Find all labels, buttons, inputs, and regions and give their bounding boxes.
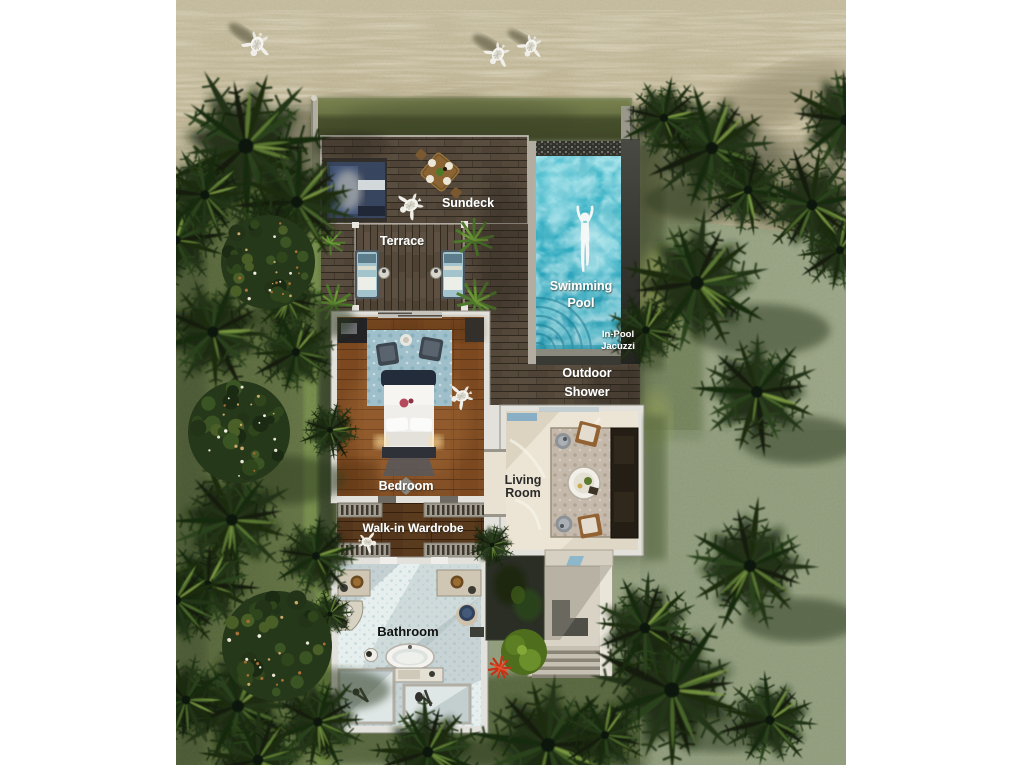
- svg-text:Shower: Shower: [564, 385, 609, 399]
- svg-text:Pool: Pool: [567, 296, 594, 310]
- svg-text:Room: Room: [505, 486, 540, 500]
- svg-text:Sundeck: Sundeck: [442, 196, 494, 210]
- svg-text:Outdoor: Outdoor: [562, 366, 611, 380]
- svg-text:Bedroom: Bedroom: [379, 479, 434, 493]
- svg-text:Bathroom: Bathroom: [377, 624, 438, 639]
- svg-text:Terrace: Terrace: [380, 234, 424, 248]
- svg-text:Swimming: Swimming: [550, 279, 613, 293]
- svg-text:Walk-in Wardrobe: Walk-in Wardrobe: [362, 521, 463, 535]
- svg-text:Living: Living: [505, 473, 542, 487]
- svg-text:In-Pool: In-Pool: [602, 329, 634, 340]
- svg-text:Jacuzzi: Jacuzzi: [601, 341, 635, 352]
